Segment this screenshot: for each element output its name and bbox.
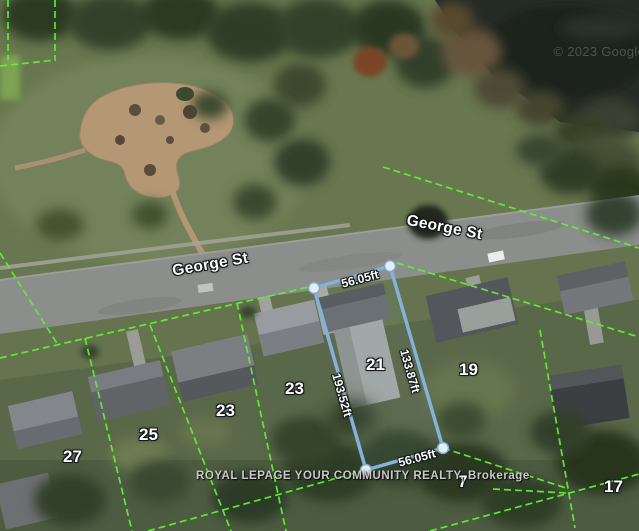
red-tree	[353, 47, 387, 77]
parcel-vertex-handle[interactable]	[361, 465, 372, 476]
parcel-vertex-handle[interactable]	[385, 261, 396, 272]
bright-grass-patch	[0, 55, 20, 100]
parcel-vertex-handle[interactable]	[438, 443, 449, 454]
parcel-vertex-handle[interactable]	[309, 283, 320, 294]
satellite-map-view[interactable]: George St George St 56.05ft 193.52ft 133…	[0, 0, 639, 531]
satellite-imagery	[0, 0, 639, 531]
dark-vehicle-shadow	[408, 205, 448, 239]
lawn-patch-2	[179, 417, 231, 447]
